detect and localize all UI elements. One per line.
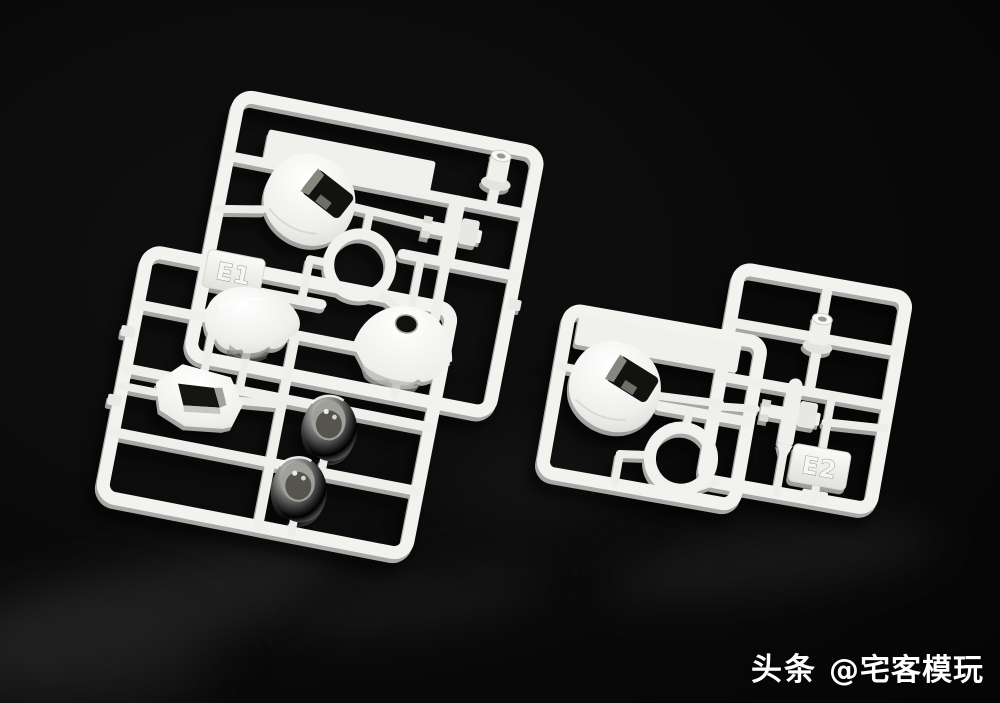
watermark-brand: 头条 [751,644,817,689]
watermark: 头条 @宅客模玩 [751,644,984,689]
watermark-handle: @宅客模玩 [829,645,984,689]
sprue-e2 [542,240,908,529]
sprue-photo-svg: E1 [0,0,1000,703]
photo-stage: E1 [0,0,1000,703]
